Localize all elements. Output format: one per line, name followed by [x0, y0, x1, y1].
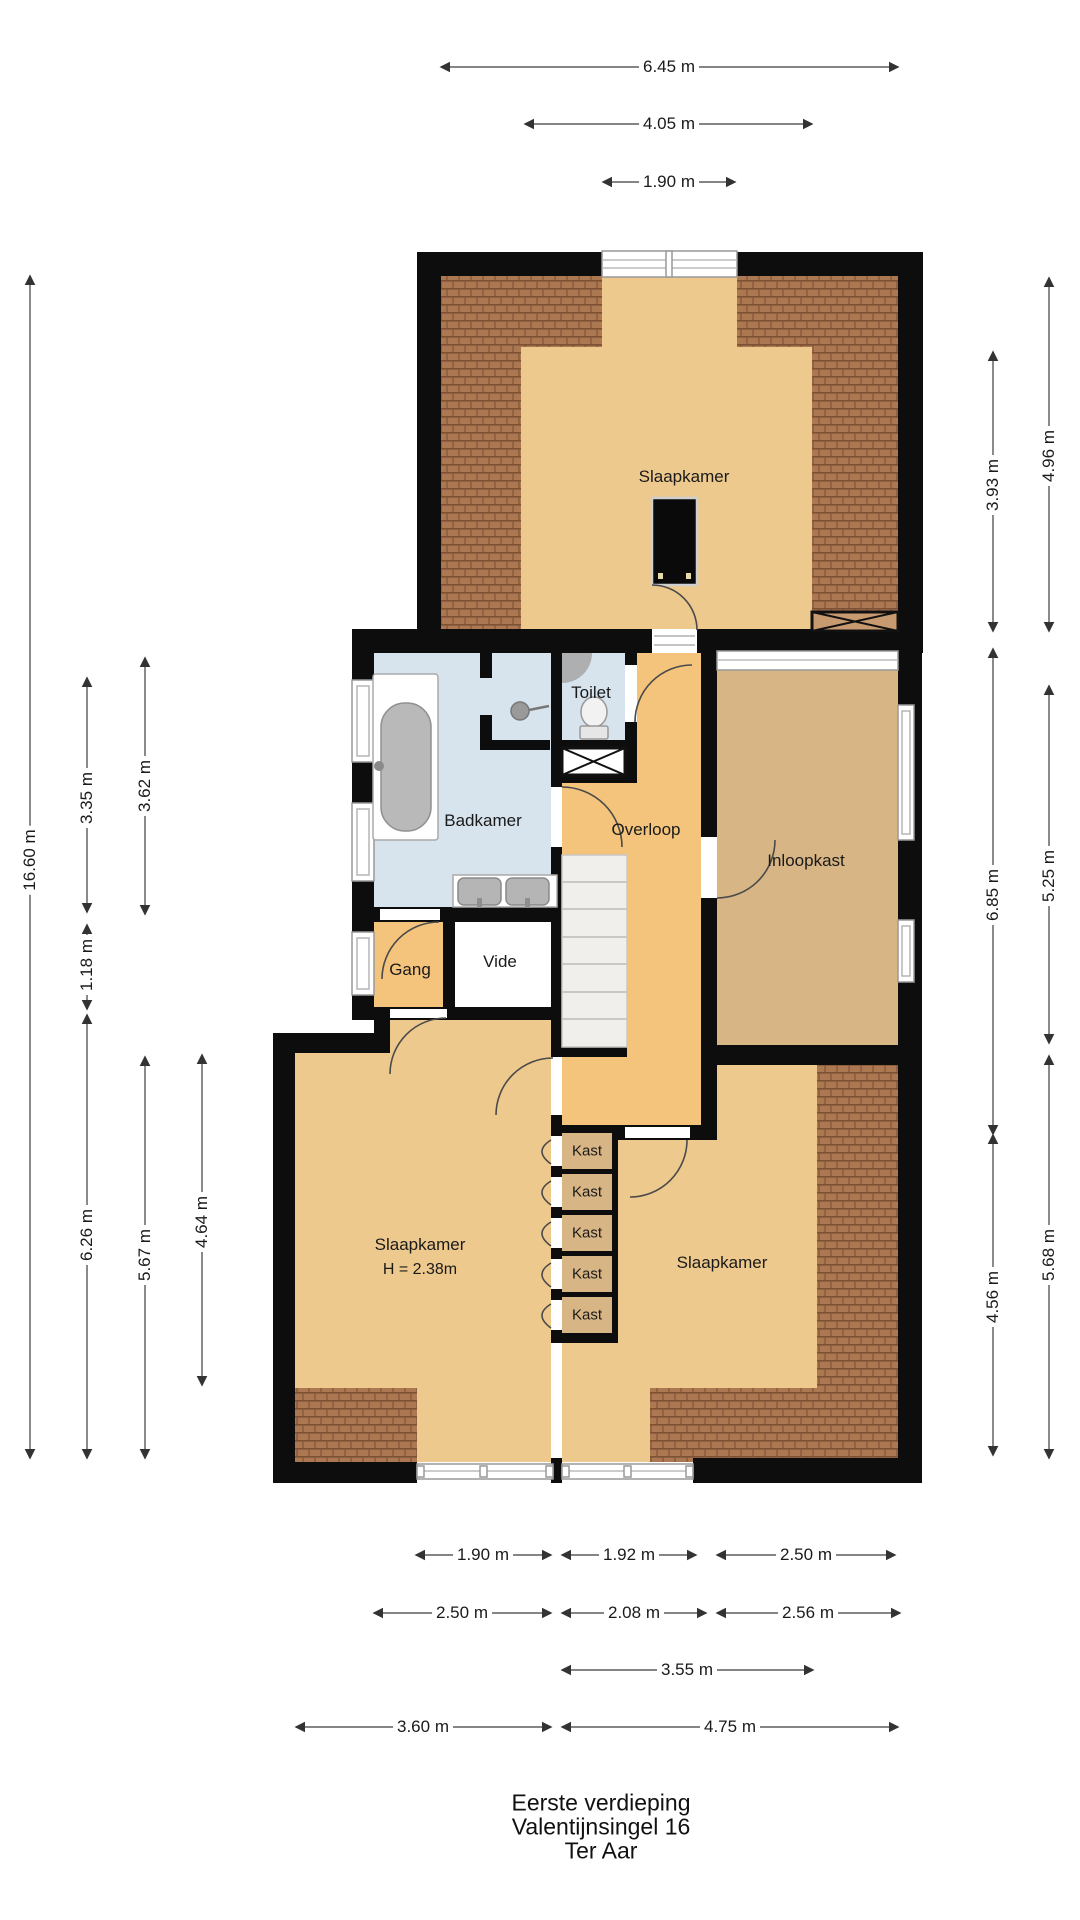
room-label-bedroom-left: Slaapkamer: [375, 1235, 466, 1255]
dim-label: 16.60 m: [20, 825, 40, 894]
dim-label: 3.62 m: [135, 756, 155, 816]
dim-label: 6.85 m: [983, 865, 1003, 925]
floor-plan-page: Slaapkamer Badkamer Toilet Overloop Inlo…: [0, 0, 1080, 1920]
closet-label: Kast: [572, 1266, 602, 1283]
room-label-void: Vide: [483, 952, 517, 972]
closet-label: Kast: [572, 1184, 602, 1201]
floor-plan-drawing: [0, 0, 1080, 1920]
dim-label: 6.45 m: [639, 57, 699, 77]
room-label-hallway: Gang: [389, 960, 431, 980]
dim-label: 5.67 m: [135, 1225, 155, 1285]
dim-label: 4.64 m: [192, 1192, 212, 1252]
washbasins: [453, 875, 557, 908]
dim-label: 2.56 m: [778, 1603, 838, 1623]
staircase: [562, 855, 627, 1047]
room-label-bathroom: Badkamer: [444, 811, 521, 831]
dim-label: 5.25 m: [1039, 846, 1059, 906]
black-cabinet: [652, 498, 697, 585]
city-line: Ter Aar: [565, 1838, 638, 1865]
dim-label: 3.55 m: [657, 1660, 717, 1680]
dim-label: 4.56 m: [983, 1267, 1003, 1327]
bath-faucet-icon: [374, 761, 384, 771]
room-label-bedroom-left-height: H = 2.38m: [383, 1261, 457, 1279]
dim-label: 3.93 m: [983, 455, 1003, 515]
dim-label: 5.68 m: [1039, 1225, 1059, 1285]
roof-shaft-box: [812, 612, 898, 631]
dim-label: 2.50 m: [432, 1603, 492, 1623]
dim-label: 3.35 m: [77, 768, 97, 828]
dim-label: 4.05 m: [639, 114, 699, 134]
room-label-toilet: Toilet: [571, 683, 611, 703]
dim-label: 4.75 m: [700, 1717, 760, 1737]
room-label-walk-in-closet: Inloopkast: [767, 851, 845, 871]
dim-label: 6.26 m: [77, 1205, 97, 1265]
dim-label: 4.96 m: [1039, 426, 1059, 486]
dim-label: 1.90 m: [453, 1545, 513, 1565]
dim-label: 1.18 m: [77, 935, 97, 995]
shaft-box: [562, 748, 625, 775]
bathtub: [373, 674, 438, 840]
closet-label: Kast: [572, 1307, 602, 1324]
dim-label: 3.60 m: [393, 1717, 453, 1737]
room-label-bedroom-right: Slaapkamer: [677, 1253, 768, 1273]
dim-label: 1.90 m: [639, 172, 699, 192]
dim-label: 2.50 m: [776, 1545, 836, 1565]
address-line: Valentijnsingel 16: [512, 1814, 691, 1841]
dim-label: 1.92 m: [599, 1545, 659, 1565]
closet-label: Kast: [572, 1225, 602, 1242]
room-label-bedroom-top: Slaapkamer: [639, 467, 730, 487]
floor-title: Eerste verdieping: [512, 1790, 691, 1817]
room-label-landing: Overloop: [612, 820, 681, 840]
closet-label: Kast: [572, 1143, 602, 1160]
dim-label: 2.08 m: [604, 1603, 664, 1623]
